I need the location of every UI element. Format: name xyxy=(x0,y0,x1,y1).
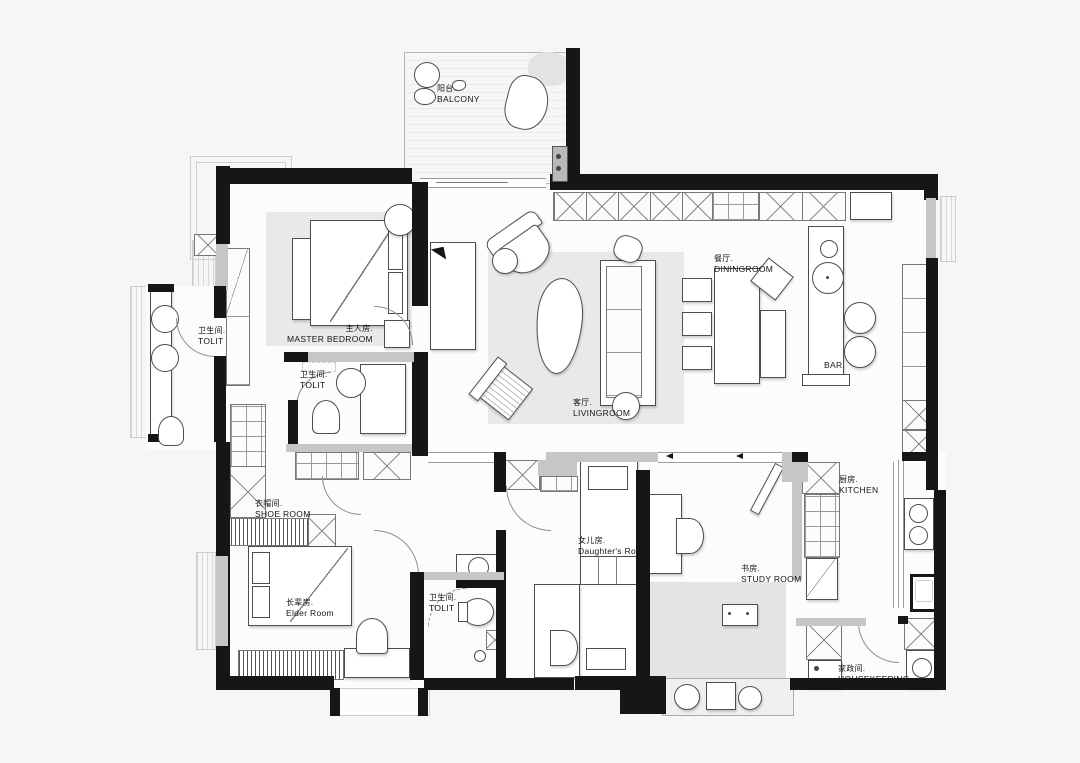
wall xyxy=(330,688,340,716)
label-zh: 阳台. xyxy=(437,84,480,94)
label-kitchen: 厨房.KITCHEN xyxy=(839,475,878,496)
desk-chair xyxy=(550,630,578,666)
shower-drain xyxy=(474,650,486,662)
wall xyxy=(575,676,665,690)
label-zh: 卫生间. xyxy=(429,593,456,603)
wall xyxy=(934,490,946,688)
label-en: HOUSEKEEPING xyxy=(838,674,910,684)
hinge-dot xyxy=(556,154,561,159)
label-zh: 家政间. xyxy=(838,664,910,674)
wall xyxy=(284,352,308,362)
cabinet-top xyxy=(538,460,577,476)
stool xyxy=(738,686,762,710)
label-toilet-middle: 卫生间.TOLIT xyxy=(429,593,456,614)
cabinet-row xyxy=(758,192,846,221)
label-zh: 长辈房. xyxy=(286,598,334,608)
balcony-threshold xyxy=(420,178,546,188)
wall xyxy=(792,452,808,462)
wall xyxy=(418,688,428,716)
label-zh: 女儿房. xyxy=(578,536,648,546)
bar-stool xyxy=(844,336,876,368)
cabinet-shelf xyxy=(712,192,759,221)
sofa-cushions xyxy=(606,266,642,398)
balcony-door xyxy=(552,146,568,182)
hanging-rail xyxy=(226,518,312,546)
pillow xyxy=(252,586,270,618)
window-wall xyxy=(216,244,228,290)
label-en: KITCHEN xyxy=(839,485,878,495)
pillow xyxy=(586,648,626,670)
burner xyxy=(909,504,928,523)
wall xyxy=(410,572,424,680)
label-zh: 书房. xyxy=(741,564,801,574)
shelf-divider xyxy=(616,556,617,584)
label-zh: 衣帽间. xyxy=(255,499,311,509)
cabinet-shelf xyxy=(804,494,840,558)
label-en: Elder Room xyxy=(286,608,334,618)
wall xyxy=(288,400,298,446)
rug-study xyxy=(646,582,786,678)
wall xyxy=(496,530,506,678)
pillow xyxy=(388,272,403,314)
label-balcony: 阳台.BALCONY xyxy=(437,84,480,105)
wardrobe-door-line xyxy=(226,248,248,316)
label-bar: BAR. xyxy=(824,360,845,371)
label-en: DININGROOM xyxy=(714,264,773,274)
toilet xyxy=(158,416,184,446)
study-sliding-door xyxy=(658,452,792,463)
sink xyxy=(336,368,366,398)
label-zh: 餐厅. xyxy=(714,254,773,264)
wall xyxy=(216,166,230,244)
pillow xyxy=(252,552,270,584)
shelf-divider xyxy=(598,556,599,584)
wall xyxy=(148,284,174,292)
wall xyxy=(924,174,938,200)
bar-plinth xyxy=(802,374,850,386)
table-dot xyxy=(728,612,731,615)
label-elder-room: 长辈房.Elder Room xyxy=(286,598,334,619)
wall xyxy=(550,174,938,190)
elder-chair xyxy=(356,618,388,654)
dining-chair xyxy=(682,278,712,302)
stone xyxy=(414,88,436,105)
wall xyxy=(566,48,580,180)
sink xyxy=(151,305,179,333)
stool-table xyxy=(706,682,736,710)
label-en: BALCONY xyxy=(437,94,480,104)
label-zh: 卫生间. xyxy=(198,326,225,336)
floor-plan: 阳台.BALCONY 主人房.MASTER BEDROOM 卫生间.TOLIT … xyxy=(0,0,1080,763)
wall xyxy=(412,352,428,456)
label-toilet-left: 卫生间.TOLIT xyxy=(198,326,225,347)
label-daughters-room: 女儿房.Daughter's Room xyxy=(578,536,648,557)
window-wall xyxy=(216,556,228,646)
bar-sink xyxy=(820,240,838,258)
wall-light xyxy=(424,572,504,580)
label-housekeeping: 家政间.HOUSEKEEPING xyxy=(838,664,910,685)
label-en: TOLIT xyxy=(198,336,223,346)
floor-entry-stub xyxy=(332,688,430,716)
label-zh: 客厅. xyxy=(573,398,630,408)
label-zh: 主人房. xyxy=(287,324,373,334)
window-sill xyxy=(940,196,956,262)
cabinet xyxy=(308,514,336,548)
label-en: BAR. xyxy=(824,360,845,370)
bar-hob-dot xyxy=(826,276,829,279)
wall xyxy=(902,452,934,461)
wall xyxy=(216,168,412,184)
label-master-bedroom: 主人房.MASTER BEDROOM xyxy=(287,324,373,345)
label-en: MASTER BEDROOM xyxy=(287,334,373,344)
label-en: TOLIT xyxy=(300,380,325,390)
dining-table xyxy=(714,268,760,384)
wall-light xyxy=(546,452,658,462)
side-table xyxy=(492,248,518,274)
label-study-room: 书房.STUDY ROOM xyxy=(741,564,801,585)
wall xyxy=(216,442,230,524)
study-chair xyxy=(676,518,704,554)
washer-door xyxy=(912,658,932,678)
pillow xyxy=(588,466,628,490)
shower xyxy=(360,364,406,434)
label-zh: 卫生间. xyxy=(300,370,327,380)
label-diningroom: 餐厅.DININGROOM xyxy=(714,254,773,275)
label-livingroom: 客厅.LIVINGROOM xyxy=(573,398,630,419)
label-toilet-master: 卫生间.TOLIT xyxy=(300,370,327,391)
bed-bench xyxy=(292,238,312,320)
dining-chair xyxy=(682,346,712,370)
dining-bench xyxy=(760,310,786,378)
wall xyxy=(412,182,428,306)
oven-door xyxy=(915,580,933,602)
wall-light xyxy=(796,618,866,626)
sink xyxy=(151,344,179,372)
shoe-cabinet xyxy=(230,404,266,468)
washer-dot xyxy=(814,666,819,671)
window-wall xyxy=(926,198,936,258)
low-table xyxy=(722,604,758,626)
cabinet xyxy=(363,452,411,480)
label-en: STUDY ROOM xyxy=(741,574,801,584)
bar-stool xyxy=(844,302,876,334)
appliance-line xyxy=(806,558,836,598)
balcony-threshold-line xyxy=(436,182,508,183)
burner xyxy=(909,526,928,545)
label-shoe-room: 衣帽间.SHOE ROOM xyxy=(255,499,311,520)
bed-shelf xyxy=(580,556,638,586)
label-en: LIVINGROOM xyxy=(573,408,630,418)
slide-arrow xyxy=(736,453,743,459)
entry-arrow-marker xyxy=(431,247,446,262)
wall xyxy=(214,356,226,442)
wall xyxy=(494,452,506,492)
table-dot xyxy=(746,612,749,615)
wall xyxy=(214,286,226,318)
cabinet xyxy=(806,620,842,660)
dining-chair xyxy=(682,312,712,336)
cabinet-row xyxy=(553,192,713,221)
label-zh: 厨房. xyxy=(839,475,878,485)
wall xyxy=(216,676,334,690)
wall-light xyxy=(286,444,412,452)
wall xyxy=(636,470,650,678)
cabinet xyxy=(904,618,938,650)
console-table xyxy=(850,192,892,220)
corridor-wall xyxy=(428,452,494,463)
label-en: Daughter's Room xyxy=(578,546,648,556)
label-en: TOLIT xyxy=(429,603,454,613)
wall xyxy=(898,616,908,624)
window-sill xyxy=(196,552,216,650)
stool xyxy=(674,684,700,710)
slide-arrow xyxy=(666,453,673,459)
wall xyxy=(424,678,574,690)
label-en: SHOE ROOM xyxy=(255,509,311,519)
hinge-dot xyxy=(556,166,561,171)
